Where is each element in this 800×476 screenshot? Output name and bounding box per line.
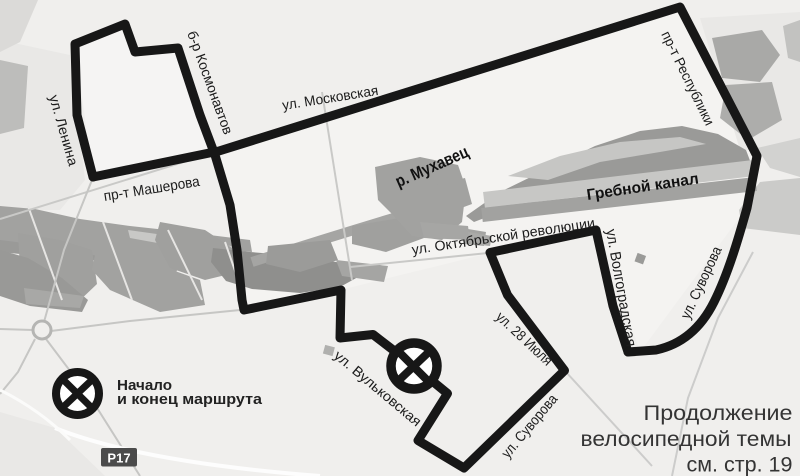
svg-text:Продолжение: Продолжение	[644, 401, 793, 425]
svg-text:велосипедной темы: велосипедной темы	[581, 427, 792, 451]
svg-text:и конец маршрута: и конец маршрута	[117, 392, 263, 408]
svg-text:см. стр. 19: см. стр. 19	[687, 453, 793, 476]
svg-text:Р17: Р17	[107, 451, 130, 466]
